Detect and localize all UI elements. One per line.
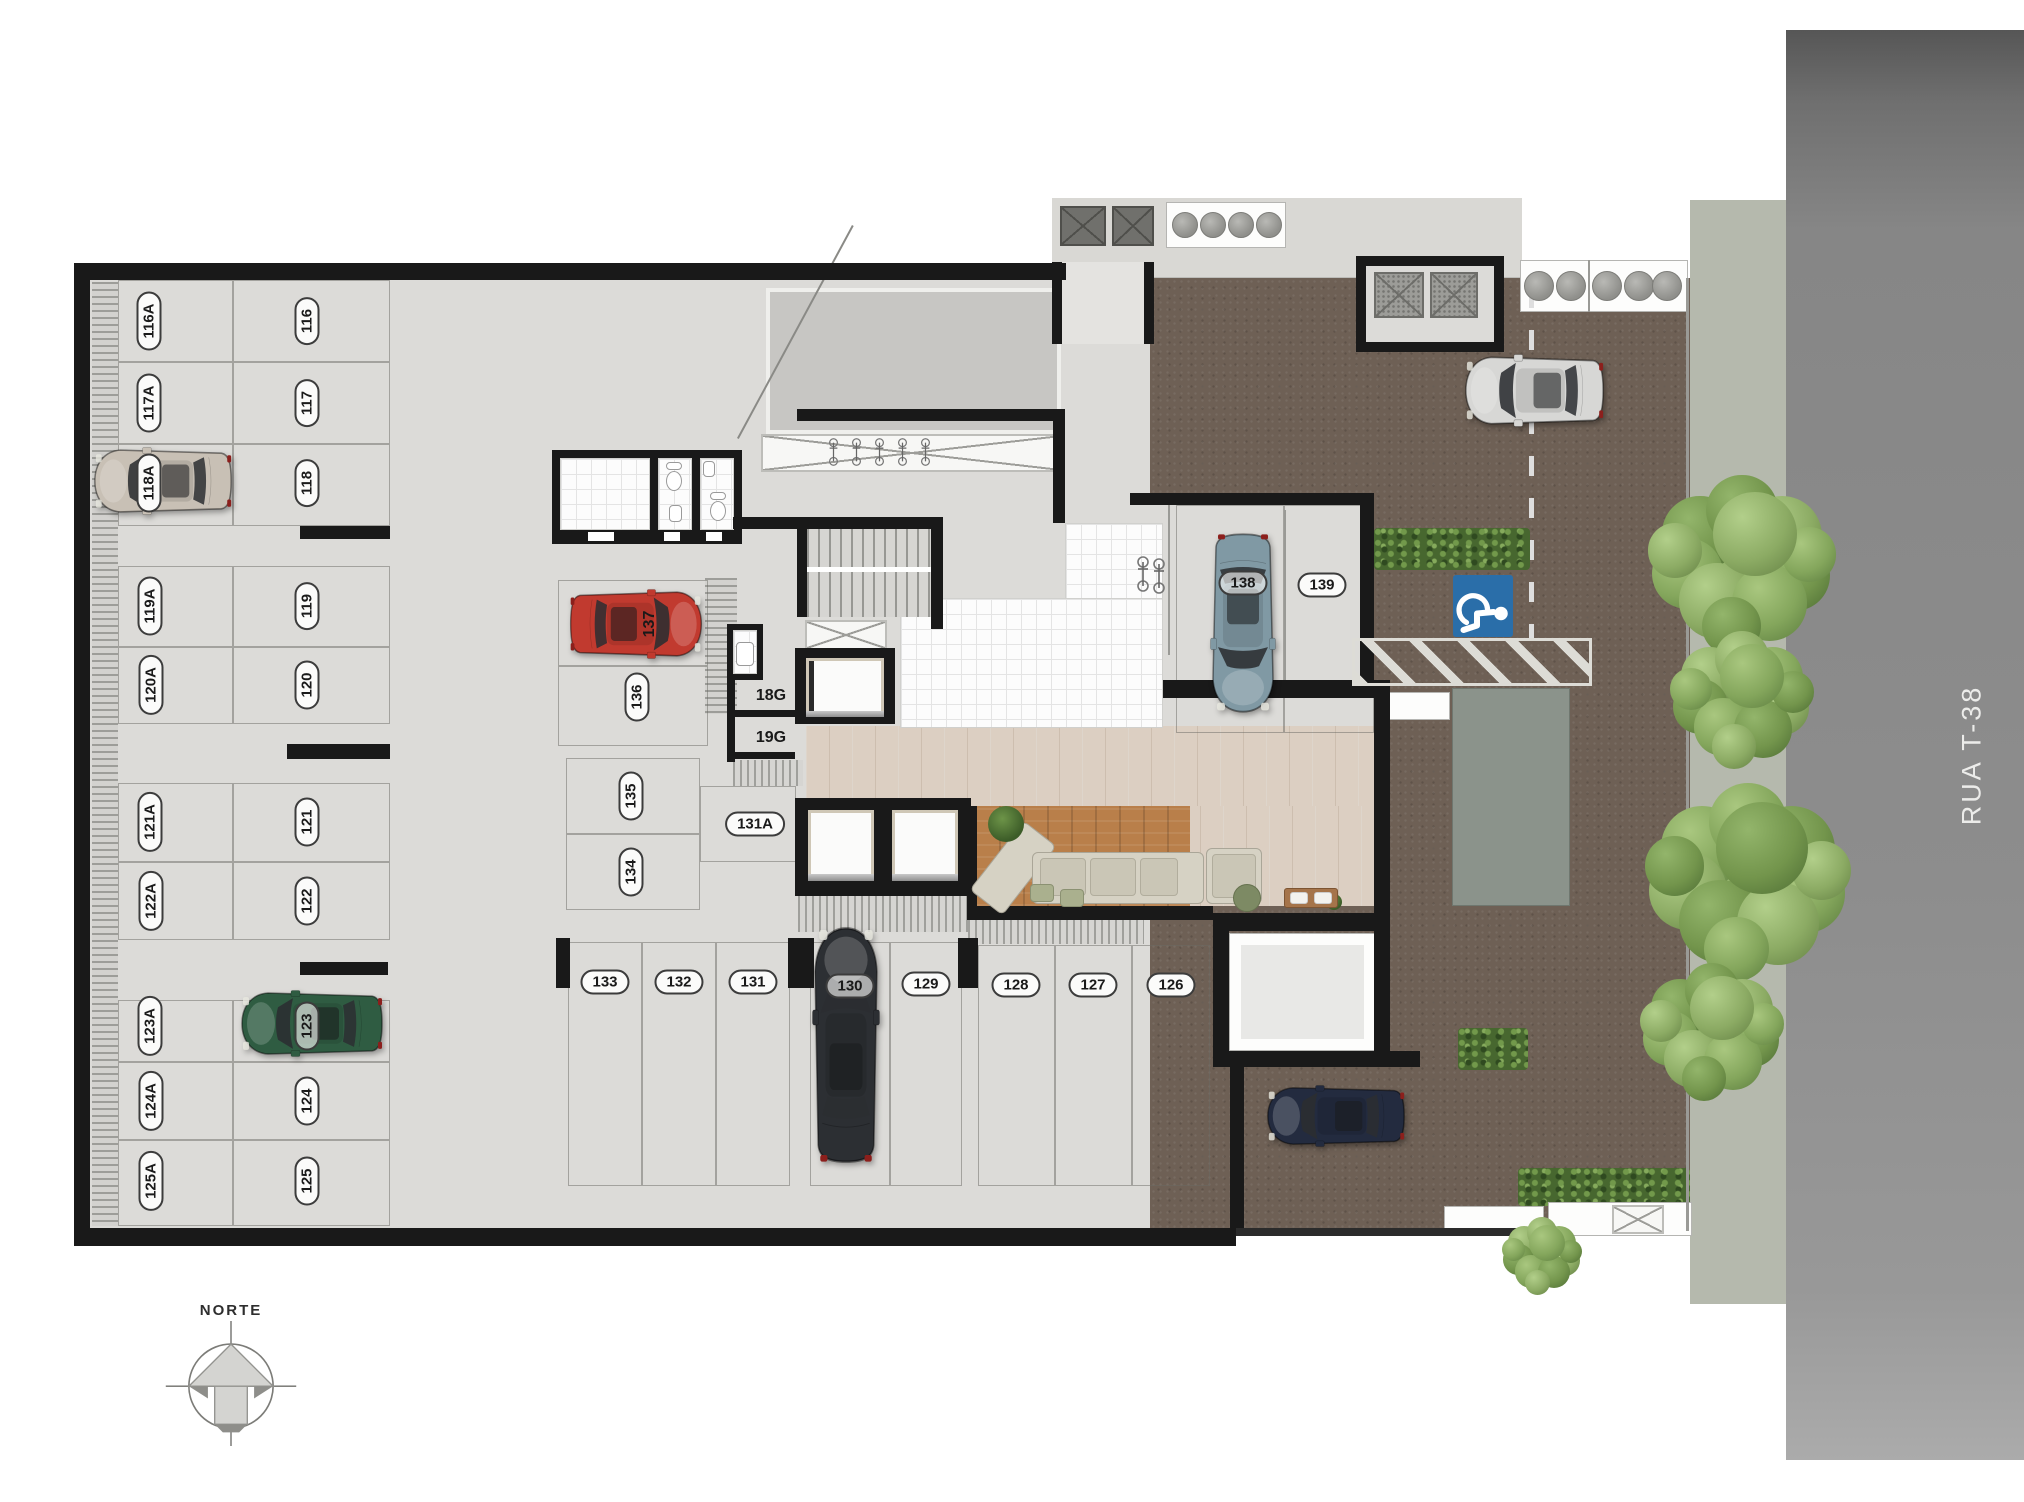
lobby-floor bbox=[806, 726, 1376, 806]
bike-hook bbox=[828, 438, 839, 466]
tree-foliage bbox=[1502, 1238, 1525, 1261]
tree-foliage bbox=[1640, 1000, 1682, 1042]
toilet-bowl bbox=[710, 501, 726, 521]
spot-label-118A: 118A bbox=[137, 453, 162, 512]
tree-foliage bbox=[1713, 492, 1797, 576]
spot-label-122A: 122A bbox=[139, 871, 164, 931]
car-6 bbox=[1263, 1085, 1409, 1147]
planter bbox=[1652, 271, 1682, 301]
stair-wall bbox=[797, 529, 807, 617]
elevator-sill bbox=[806, 711, 884, 717]
utility-box bbox=[1060, 206, 1106, 246]
storage-room-wall bbox=[1213, 913, 1374, 931]
planter-box-x bbox=[1612, 1205, 1664, 1234]
spot-label-135: 135 bbox=[619, 771, 644, 820]
tree-foliage bbox=[1716, 802, 1808, 894]
planter bbox=[1592, 271, 1622, 301]
elevator-cab bbox=[892, 810, 958, 880]
spot-label-120A: 120A bbox=[139, 655, 164, 715]
spot-label-127: 127 bbox=[1068, 973, 1117, 998]
compass-rose-icon bbox=[156, 1321, 306, 1446]
room-label-18G: 18G bbox=[756, 687, 786, 705]
parking-spot-121A bbox=[118, 783, 233, 862]
bike-hook bbox=[851, 438, 862, 466]
planter bbox=[1172, 212, 1198, 238]
parking-spot-119A bbox=[118, 566, 233, 647]
bike-hook bbox=[874, 438, 885, 466]
car-body bbox=[812, 920, 880, 1170]
car-body bbox=[1263, 1085, 1409, 1147]
toilet-tank bbox=[710, 492, 726, 500]
equipment-room-wall bbox=[1356, 342, 1504, 352]
outer-wall-left bbox=[74, 263, 90, 1246]
planter bbox=[1256, 212, 1282, 238]
tree-foliage bbox=[1648, 523, 1703, 578]
room-18g-wall bbox=[727, 676, 735, 762]
aisle-stub bbox=[287, 744, 390, 759]
equipment-room-wall bbox=[1494, 256, 1504, 352]
car-3 bbox=[812, 920, 880, 1170]
parking-spot-117A bbox=[118, 362, 233, 444]
accessible-parking-sign bbox=[1453, 575, 1513, 637]
compass-label: NORTE bbox=[156, 1302, 306, 1319]
planter bbox=[1524, 271, 1554, 301]
bicycle bbox=[1152, 558, 1166, 594]
sink bbox=[669, 505, 682, 522]
car-body bbox=[566, 589, 706, 659]
elevator-rail bbox=[809, 661, 814, 713]
spot-label-130: 130 bbox=[825, 974, 874, 999]
sofa-cushion bbox=[1090, 858, 1136, 896]
spot-label-126: 126 bbox=[1146, 973, 1195, 998]
spot-label-123: 123 bbox=[295, 1001, 320, 1050]
stair-wall bbox=[733, 517, 943, 529]
spot-label-132: 132 bbox=[654, 970, 703, 995]
pouf bbox=[1030, 884, 1054, 902]
spot-label-119: 119 bbox=[295, 582, 320, 630]
outer-wall-bottom bbox=[74, 1228, 1236, 1246]
floor-plan-canvas: 116A116117A117118A118119A119120A120121A1… bbox=[0, 0, 2024, 1502]
stairwell-treads bbox=[807, 529, 931, 617]
car-4 bbox=[1210, 528, 1276, 718]
corridor-grate bbox=[733, 760, 803, 786]
storage-room-wall bbox=[1213, 913, 1229, 1067]
tree-foliage bbox=[1712, 724, 1757, 769]
parking-spot-123A bbox=[118, 1000, 233, 1062]
car-5 bbox=[1461, 354, 1608, 427]
parking-spot-122A bbox=[118, 862, 233, 940]
sink bbox=[703, 461, 715, 477]
equipment-unit bbox=[1430, 272, 1478, 318]
service-elevator-cab bbox=[806, 658, 884, 716]
elevator-cab bbox=[808, 810, 874, 880]
no-parking-hatch bbox=[1352, 638, 1592, 686]
gate-wall bbox=[1144, 262, 1154, 344]
spot-label-124: 124 bbox=[295, 1076, 320, 1125]
lobby-grate bbox=[968, 920, 1144, 944]
hedge bbox=[1374, 528, 1530, 570]
spot-label-138: 138 bbox=[1218, 571, 1267, 596]
car-body bbox=[1461, 354, 1608, 427]
toilet-tank bbox=[666, 462, 682, 470]
hedge bbox=[1458, 1028, 1528, 1070]
gate-bay bbox=[1062, 262, 1144, 344]
door-gap bbox=[706, 532, 722, 541]
equipment-unit bbox=[1374, 272, 1424, 318]
sofa-cushion bbox=[1140, 858, 1178, 896]
tree-foliage bbox=[1525, 1270, 1550, 1295]
tree-foliage bbox=[1645, 836, 1705, 896]
spot-label-139: 139 bbox=[1297, 573, 1346, 598]
parking-spot-120A bbox=[118, 647, 233, 724]
door-gap bbox=[664, 532, 680, 541]
spot-label-125A: 125A bbox=[139, 1151, 164, 1211]
spot-label-131A: 131A bbox=[725, 812, 785, 837]
car-body bbox=[1210, 528, 1276, 718]
spot-divider bbox=[1284, 510, 1286, 680]
tree-foliage bbox=[1682, 1056, 1727, 1101]
spot-label-119A: 119A bbox=[138, 576, 163, 635]
door-gap bbox=[588, 532, 614, 541]
tray bbox=[1290, 892, 1308, 904]
spot-label-125: 125 bbox=[295, 1156, 320, 1205]
car-2 bbox=[566, 589, 706, 659]
equipment-room-wall bbox=[1356, 256, 1366, 352]
parking-spot-116A bbox=[118, 280, 233, 362]
entry-path bbox=[1386, 692, 1450, 720]
bike-hook bbox=[920, 438, 931, 466]
sink bbox=[736, 642, 754, 666]
pouf bbox=[1060, 889, 1084, 907]
spot-label-123A: 123A bbox=[138, 996, 163, 1056]
elevator-sill bbox=[892, 874, 958, 881]
elevator-sill bbox=[808, 874, 874, 881]
parking-spot-125A bbox=[118, 1140, 233, 1226]
storage-room-a-wall bbox=[797, 409, 1065, 421]
tree-foliage bbox=[1690, 976, 1754, 1040]
room-divider bbox=[735, 752, 795, 759]
spot-label-121A: 121A bbox=[138, 792, 163, 852]
bicycle bbox=[1136, 556, 1150, 592]
car-0 bbox=[90, 447, 236, 515]
aisle-stub bbox=[300, 526, 390, 539]
spot-label-137: 137 bbox=[641, 611, 659, 638]
lobby-wall-right bbox=[1374, 680, 1390, 1067]
spot-label-122: 122 bbox=[295, 876, 320, 925]
spot-label-116A: 116A bbox=[137, 291, 162, 350]
court-wall bbox=[1230, 1067, 1244, 1228]
spot-label-121: 121 bbox=[295, 797, 320, 846]
spot-stub bbox=[556, 938, 570, 988]
tree-foliage bbox=[1529, 1225, 1565, 1261]
storage-room-rug bbox=[1241, 945, 1364, 1039]
spot-stub bbox=[788, 938, 814, 988]
tree-foliage bbox=[1670, 668, 1712, 710]
stair-wall bbox=[931, 517, 943, 629]
room-label-19G: 19G bbox=[756, 729, 786, 747]
hedge bbox=[1518, 1168, 1690, 1206]
planter bbox=[1556, 271, 1586, 301]
shaft-corridor bbox=[805, 620, 887, 650]
stairwell-landing bbox=[807, 567, 931, 572]
equipment-room-wall bbox=[1356, 256, 1504, 266]
planter-strip-divider bbox=[1588, 260, 1590, 312]
outer-wall-top bbox=[74, 263, 1066, 280]
toilet-bowl bbox=[666, 471, 682, 491]
bike-bay-divider bbox=[1168, 505, 1170, 655]
planter bbox=[1624, 271, 1654, 301]
driveway-centerline bbox=[1529, 288, 1534, 640]
spot-label-118: 118 bbox=[295, 459, 320, 507]
north-compass: NORTE bbox=[156, 1302, 306, 1451]
storage-room-wall bbox=[1213, 1051, 1420, 1067]
vent-strip-left bbox=[92, 282, 118, 1226]
spot-label-117A: 117A bbox=[137, 373, 162, 432]
aisle-stub bbox=[300, 962, 388, 975]
tree-foliage bbox=[1720, 644, 1784, 708]
spot-label-134: 134 bbox=[619, 847, 644, 896]
planter bbox=[1200, 212, 1226, 238]
spot-label-129: 129 bbox=[901, 972, 950, 997]
outer-wall-bottom-thin bbox=[1236, 1228, 1526, 1236]
entry-garden-pad bbox=[1452, 688, 1570, 906]
storage-room-a-wall bbox=[1053, 409, 1065, 523]
ramp-lower bbox=[761, 434, 1063, 472]
spot-label-116: 116 bbox=[295, 297, 320, 345]
spot-block-wall bbox=[1130, 493, 1374, 505]
car-body bbox=[90, 447, 236, 515]
street-name-label: RUA T-38 bbox=[1957, 685, 1988, 826]
round-pouf bbox=[1233, 884, 1261, 912]
parking-spot-124A bbox=[118, 1062, 233, 1140]
spot-label-131: 131 bbox=[728, 970, 777, 995]
spot-label-120: 120 bbox=[295, 660, 320, 709]
spot-stub bbox=[958, 938, 978, 988]
utility-box bbox=[1112, 206, 1154, 246]
room-divider bbox=[735, 710, 795, 717]
street bbox=[1786, 30, 2024, 1460]
planter bbox=[1228, 212, 1254, 238]
spot-label-117: 117 bbox=[295, 379, 320, 427]
bike-hook bbox=[897, 438, 908, 466]
spot-label-128: 128 bbox=[991, 973, 1040, 998]
potted-plant bbox=[988, 806, 1024, 842]
shower-room bbox=[560, 458, 650, 530]
tray bbox=[1314, 892, 1332, 904]
spot-label-133: 133 bbox=[580, 970, 629, 995]
spot-label-136: 136 bbox=[625, 672, 650, 721]
spot-label-124A: 124A bbox=[139, 1071, 164, 1131]
